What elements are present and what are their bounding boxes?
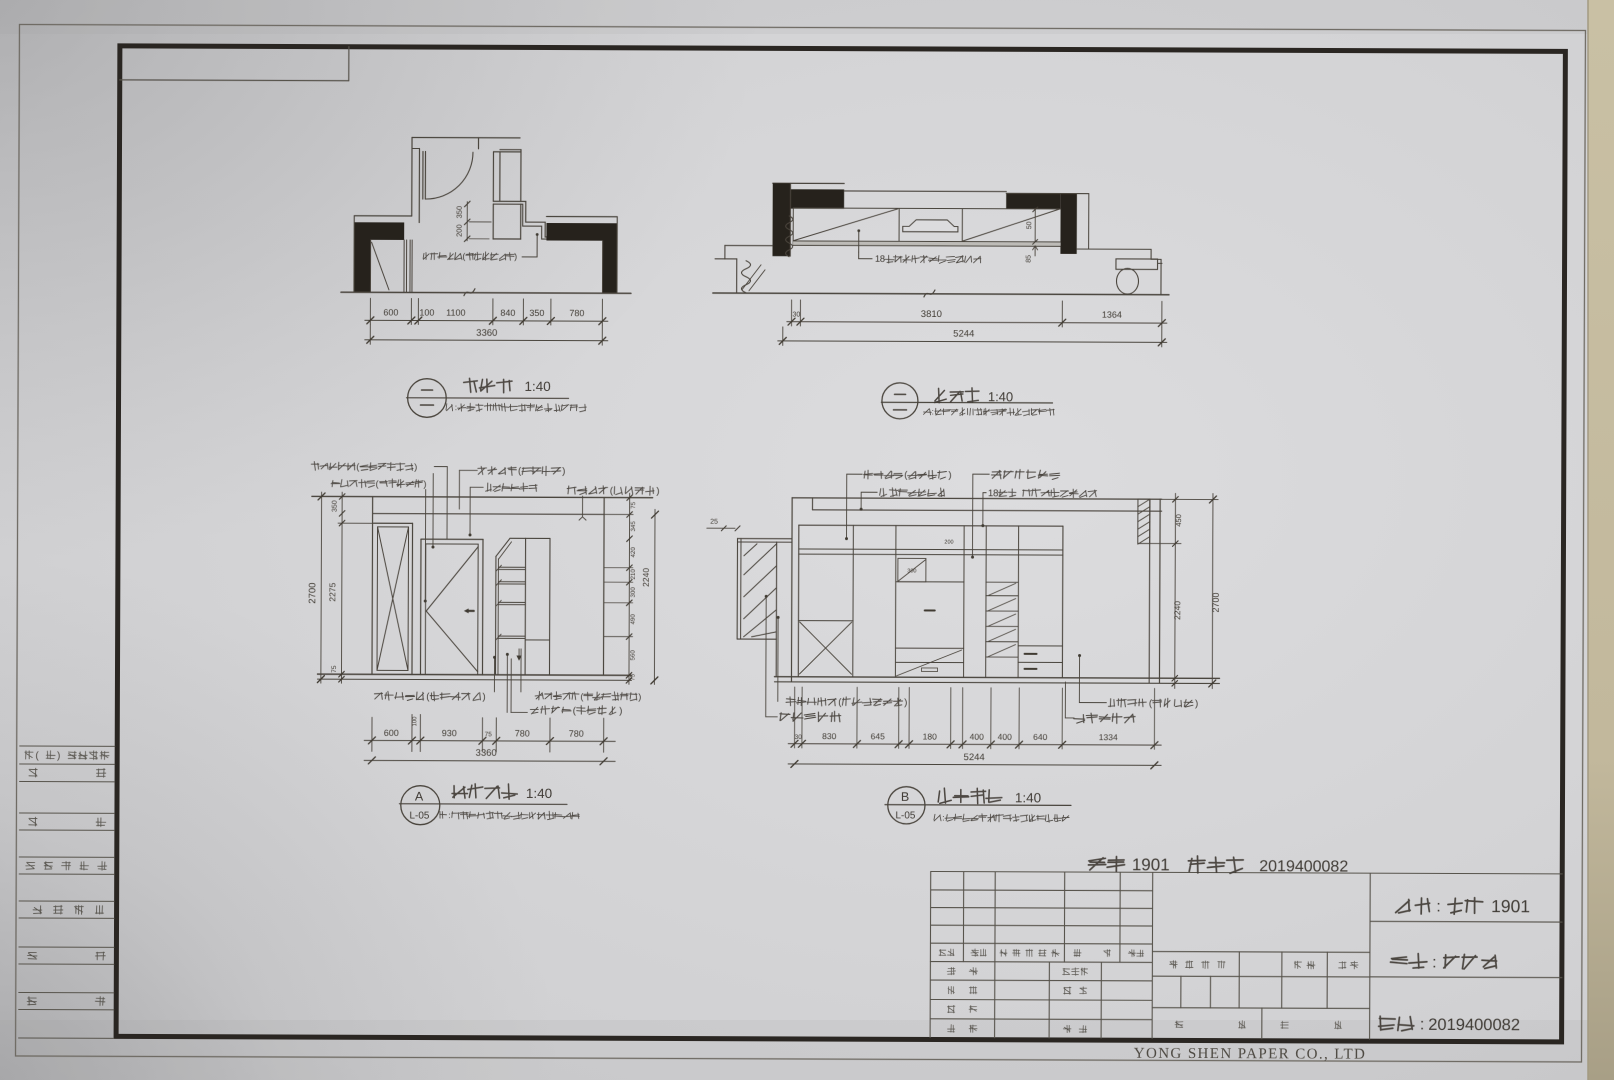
svg-text:): ) bbox=[562, 466, 565, 477]
svg-text:1100: 1100 bbox=[446, 308, 465, 318]
svg-text:(: ( bbox=[580, 691, 583, 701]
svg-text:300: 300 bbox=[907, 568, 916, 574]
svg-text:840: 840 bbox=[500, 308, 515, 318]
svg-text:): ) bbox=[619, 706, 622, 717]
svg-text::: : bbox=[1420, 1016, 1425, 1033]
svg-text:640: 640 bbox=[1033, 732, 1047, 742]
svg-text:350: 350 bbox=[455, 206, 464, 219]
svg-text:780: 780 bbox=[569, 308, 584, 318]
svg-text:30: 30 bbox=[795, 734, 803, 741]
svg-text:): ) bbox=[948, 470, 951, 481]
svg-text:): ) bbox=[482, 692, 485, 703]
svg-text:645: 645 bbox=[871, 731, 885, 741]
svg-text:830: 830 bbox=[822, 731, 836, 741]
svg-text:420: 420 bbox=[630, 547, 637, 558]
svg-text:200: 200 bbox=[944, 540, 953, 546]
svg-text:100: 100 bbox=[419, 308, 434, 318]
svg-text:1334: 1334 bbox=[1099, 732, 1118, 742]
svg-text:490: 490 bbox=[629, 614, 636, 625]
svg-text:1901: 1901 bbox=[1491, 896, 1530, 916]
svg-text:25: 25 bbox=[710, 519, 718, 526]
svg-text::: : bbox=[932, 407, 934, 416]
svg-text:200: 200 bbox=[455, 224, 464, 237]
svg-text::: : bbox=[448, 810, 450, 820]
svg-text:780: 780 bbox=[515, 728, 530, 738]
svg-text:1:40: 1:40 bbox=[988, 389, 1013, 404]
svg-text:50: 50 bbox=[1026, 221, 1033, 229]
svg-text:450: 450 bbox=[1174, 514, 1183, 527]
svg-text:3360: 3360 bbox=[476, 748, 497, 759]
svg-text:1901: 1901 bbox=[1132, 855, 1170, 874]
svg-text:780: 780 bbox=[569, 729, 584, 739]
svg-text:2019400082: 2019400082 bbox=[1259, 858, 1348, 875]
svg-text:B: B bbox=[901, 790, 909, 804]
svg-text:5244: 5244 bbox=[953, 329, 974, 340]
svg-text:180: 180 bbox=[923, 731, 937, 741]
svg-text:75: 75 bbox=[630, 501, 637, 508]
svg-text:100: 100 bbox=[411, 716, 418, 727]
svg-text:(: ( bbox=[463, 251, 466, 261]
svg-text::: : bbox=[1432, 954, 1437, 971]
svg-text::: : bbox=[1436, 898, 1441, 915]
svg-text:30: 30 bbox=[792, 312, 800, 319]
svg-text:210: 210 bbox=[630, 569, 637, 580]
svg-text:A: A bbox=[415, 789, 424, 803]
svg-text:1:40: 1:40 bbox=[524, 379, 550, 394]
svg-text:2700: 2700 bbox=[1211, 593, 1221, 613]
svg-text:3360: 3360 bbox=[476, 328, 497, 339]
svg-text:1:40: 1:40 bbox=[526, 786, 552, 801]
svg-text:345: 345 bbox=[630, 521, 637, 532]
svg-text:600: 600 bbox=[383, 307, 398, 317]
svg-text:75: 75 bbox=[629, 673, 636, 680]
svg-text:): ) bbox=[904, 697, 907, 708]
svg-text::: : bbox=[942, 813, 944, 823]
svg-text:930: 930 bbox=[442, 728, 457, 738]
svg-text:2240: 2240 bbox=[641, 568, 651, 587]
svg-text:): ) bbox=[423, 479, 426, 489]
svg-text:2240: 2240 bbox=[1172, 601, 1182, 620]
svg-text:(: ( bbox=[376, 479, 379, 489]
svg-text:): ) bbox=[656, 486, 659, 497]
svg-text:5244: 5244 bbox=[964, 752, 985, 763]
svg-text:400: 400 bbox=[970, 732, 984, 742]
svg-text:): ) bbox=[414, 462, 417, 472]
svg-text:2700: 2700 bbox=[307, 583, 318, 604]
svg-text:560: 560 bbox=[629, 650, 636, 661]
svg-text:3810: 3810 bbox=[921, 309, 942, 320]
svg-text:350: 350 bbox=[332, 500, 339, 512]
svg-text:YONG SHEN PAPER CO., LTD: YONG SHEN PAPER CO., LTD bbox=[1134, 1046, 1367, 1063]
svg-text:): ) bbox=[514, 252, 517, 262]
svg-text:1:40: 1:40 bbox=[1015, 790, 1041, 805]
svg-text:8: 8 bbox=[993, 488, 998, 499]
svg-text:1364: 1364 bbox=[1102, 310, 1122, 320]
svg-text:): ) bbox=[57, 751, 60, 762]
svg-text:L-05: L-05 bbox=[409, 810, 429, 821]
svg-text:600: 600 bbox=[384, 728, 399, 738]
svg-text::: : bbox=[455, 402, 457, 412]
svg-text:L-05: L-05 bbox=[895, 810, 915, 821]
svg-text:): ) bbox=[1195, 698, 1198, 709]
svg-text:75: 75 bbox=[331, 665, 338, 673]
svg-text:2019400082: 2019400082 bbox=[1428, 1016, 1520, 1034]
svg-text:): ) bbox=[638, 692, 641, 702]
svg-text:75: 75 bbox=[485, 731, 493, 738]
svg-text:350: 350 bbox=[529, 308, 544, 318]
svg-text:400: 400 bbox=[998, 732, 1012, 742]
svg-text:300: 300 bbox=[630, 587, 637, 598]
svg-text:2275: 2275 bbox=[327, 582, 337, 601]
svg-text:85: 85 bbox=[1026, 255, 1033, 263]
